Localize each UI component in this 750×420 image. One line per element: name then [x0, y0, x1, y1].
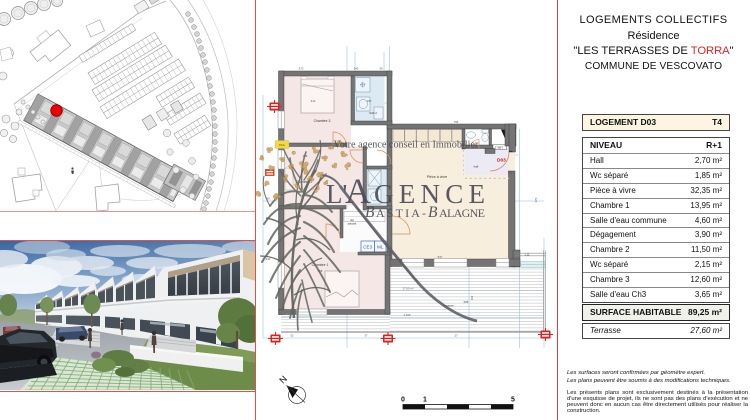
svg-text:D03: D03: [497, 158, 506, 164]
svg-text:Sdb 2: Sdb 2: [369, 111, 377, 115]
svg-text:dgt: dgt: [350, 218, 354, 222]
svg-text:5: 5: [511, 397, 515, 404]
svg-text:N: N: [277, 374, 289, 386]
svg-text:ASTIA-: ASTIA-: [376, 206, 426, 220]
svg-text:140: 140: [354, 66, 359, 70]
svg-text:ALAGNE: ALAGNE: [439, 206, 485, 220]
svg-text:370: 370: [299, 66, 304, 70]
svg-text:52: 52: [290, 334, 294, 338]
svg-text:T.SBT: T.SBT: [495, 146, 503, 150]
svg-text:1.11: 1.11: [524, 252, 530, 256]
svg-text:103: 103: [470, 295, 474, 300]
svg-text:27,60 m²: 27,60 m²: [402, 286, 413, 290]
svg-text:37: 37: [364, 334, 368, 338]
svg-text:470: 470: [534, 197, 538, 202]
svg-text:CE3: CE3: [363, 245, 372, 250]
svg-text:B: B: [428, 204, 438, 221]
svg-text:hall: hall: [474, 165, 479, 169]
svg-text:150: 150: [367, 99, 372, 103]
svg-text:ML: ML: [377, 245, 384, 250]
svg-text:360: 360: [508, 170, 513, 174]
svg-text:0: 0: [401, 397, 405, 404]
svg-text:B: B: [365, 204, 375, 221]
svg-text:Votre agence conseil en Immobi: Votre agence conseil en Immobilier: [334, 140, 479, 151]
svg-text:placard: placard: [348, 222, 357, 226]
svg-text:Pluie: Pluie: [279, 143, 285, 147]
svg-text:688: 688: [464, 300, 469, 304]
svg-text:1: 1: [423, 397, 427, 404]
svg-text:90: 90: [379, 66, 383, 70]
svg-text:Chambre 3: Chambre 3: [314, 119, 331, 123]
svg-text:27: 27: [454, 334, 458, 338]
svg-text:537: 537: [438, 255, 443, 259]
svg-text:312: 312: [311, 99, 316, 103]
svg-text:1 166: 1 166: [404, 313, 411, 317]
svg-text:794: 794: [454, 120, 459, 124]
